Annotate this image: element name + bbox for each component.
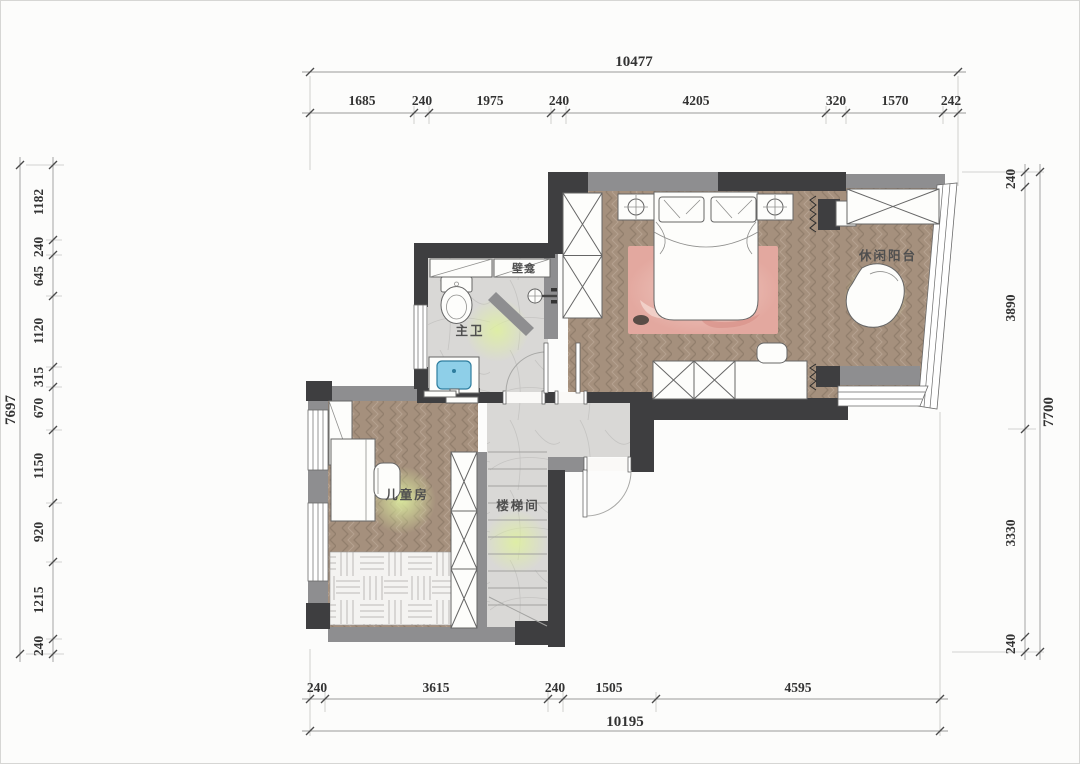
wall-segment — [306, 603, 330, 629]
wall-segment — [414, 243, 428, 307]
balcony-window-bottom — [838, 386, 928, 406]
wall-segment — [306, 381, 332, 401]
wall-segment — [415, 243, 555, 258]
wall-segment — [845, 174, 945, 188]
entry-door-arc — [587, 470, 631, 516]
pillow-left — [659, 197, 704, 222]
dim-left: 1182 240 645 1120 315 670 1150 920 1215 … — [3, 157, 64, 662]
stool — [757, 343, 787, 363]
dim-value: 920 — [31, 522, 46, 543]
bedroom-door-opening — [556, 392, 586, 403]
label-leisure-balcony: 休闲阳台 — [858, 248, 917, 263]
dim-value: 1685 — [349, 93, 376, 108]
wall-segment — [328, 627, 520, 642]
floor-plan-drawing: 主卫 壁龛 休闲阳台 儿童房 楼梯间 10477 1685 240 1975 2… — [0, 0, 1080, 764]
dim-value: 242 — [941, 93, 962, 108]
label-kids-room: 儿童房 — [384, 487, 429, 502]
cold-water-mark — [551, 300, 557, 304]
dim-top-total: 10477 — [615, 54, 653, 70]
dim-value: 1150 — [31, 453, 46, 480]
dim-value: 240 — [412, 93, 433, 108]
dim-value: 1182 — [31, 189, 46, 216]
tatami-mat — [330, 552, 452, 625]
wall-segment — [414, 367, 428, 389]
dim-value: 4205 — [683, 93, 710, 108]
bedroom-door-leaf — [576, 343, 580, 393]
dim-value: 240 — [549, 93, 570, 108]
dim-value: 1505 — [596, 680, 623, 695]
hot-water-mark — [551, 288, 557, 292]
dim-right-total: 7700 — [1041, 397, 1057, 427]
toilet-icon — [441, 287, 472, 324]
dim-value: 240 — [31, 237, 46, 258]
dim-value: 1975 — [477, 93, 504, 108]
sliding-door-panel — [446, 397, 478, 403]
dim-value: 320 — [826, 93, 847, 108]
bed — [654, 192, 758, 320]
dim-value: 240 — [545, 680, 566, 695]
dim-value: 240 — [307, 680, 328, 695]
dim-ticks — [306, 68, 962, 117]
floor-plan-page: 主卫 壁龛 休闲阳台 儿童房 楼梯间 10477 1685 240 1975 2… — [0, 0, 1080, 764]
dim-value: 240 — [1003, 634, 1018, 655]
dim-bottom-total: 10195 — [606, 714, 644, 730]
faucet-dot — [452, 369, 456, 373]
wall-segment — [630, 403, 654, 472]
label-master-bath: 主卫 — [455, 323, 484, 338]
wall-segment — [548, 457, 587, 472]
wall-segment — [652, 398, 848, 420]
wall-segment — [515, 621, 565, 645]
dim-value: 4595 — [785, 680, 812, 695]
wall-segment — [584, 172, 720, 191]
label-stairwell: 楼梯间 — [496, 498, 540, 513]
entry-door-opening — [585, 458, 631, 471]
sliding-door-panel — [424, 391, 456, 397]
vanity-desk — [735, 361, 807, 399]
wall-segment — [548, 470, 565, 647]
pillow-right — [711, 197, 756, 222]
dim-value: 3890 — [1003, 294, 1018, 321]
dim-value: 1120 — [31, 318, 46, 345]
slippers — [633, 315, 649, 325]
wall-segment — [718, 172, 846, 191]
dim-value: 3330 — [1003, 519, 1018, 546]
kids-desk — [331, 439, 375, 521]
wall-segment — [838, 366, 920, 385]
dim-value: 1215 — [31, 586, 46, 613]
wall-segment — [477, 452, 487, 628]
dim-value: 3615 — [423, 680, 450, 695]
dim-value: 645 — [31, 266, 46, 287]
label-niche: 壁龛 — [512, 261, 536, 275]
dim-value: 240 — [31, 636, 46, 657]
bathroom-door-leaf — [544, 343, 548, 393]
dim-value: 1570 — [882, 93, 909, 108]
dim-value: 240 — [1003, 169, 1018, 190]
dim-value: 315 — [31, 367, 46, 388]
sink-basin — [437, 361, 471, 389]
dim-value: 670 — [31, 398, 46, 419]
bathroom-window — [414, 305, 427, 369]
wall-segment — [816, 366, 840, 387]
dim-top: 10477 1685 240 1975 240 4205 320 1570 24… — [302, 54, 966, 186]
dim-right: 240 3890 3330 240 7700 — [952, 164, 1057, 660]
bathroom-door-opening — [504, 392, 544, 403]
dim-left-total: 7697 — [3, 395, 19, 426]
entry-door-leaf — [583, 470, 587, 517]
